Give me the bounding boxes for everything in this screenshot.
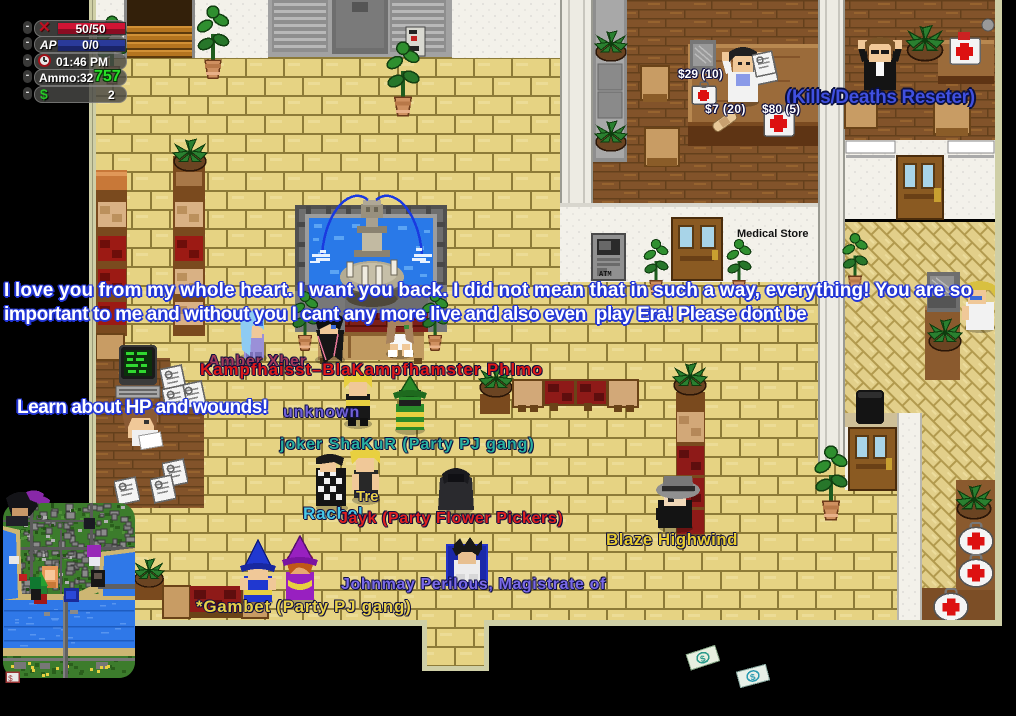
- svg-text:$: $: [8, 675, 13, 684]
- svg-text:ATM: ATM: [599, 271, 612, 279]
